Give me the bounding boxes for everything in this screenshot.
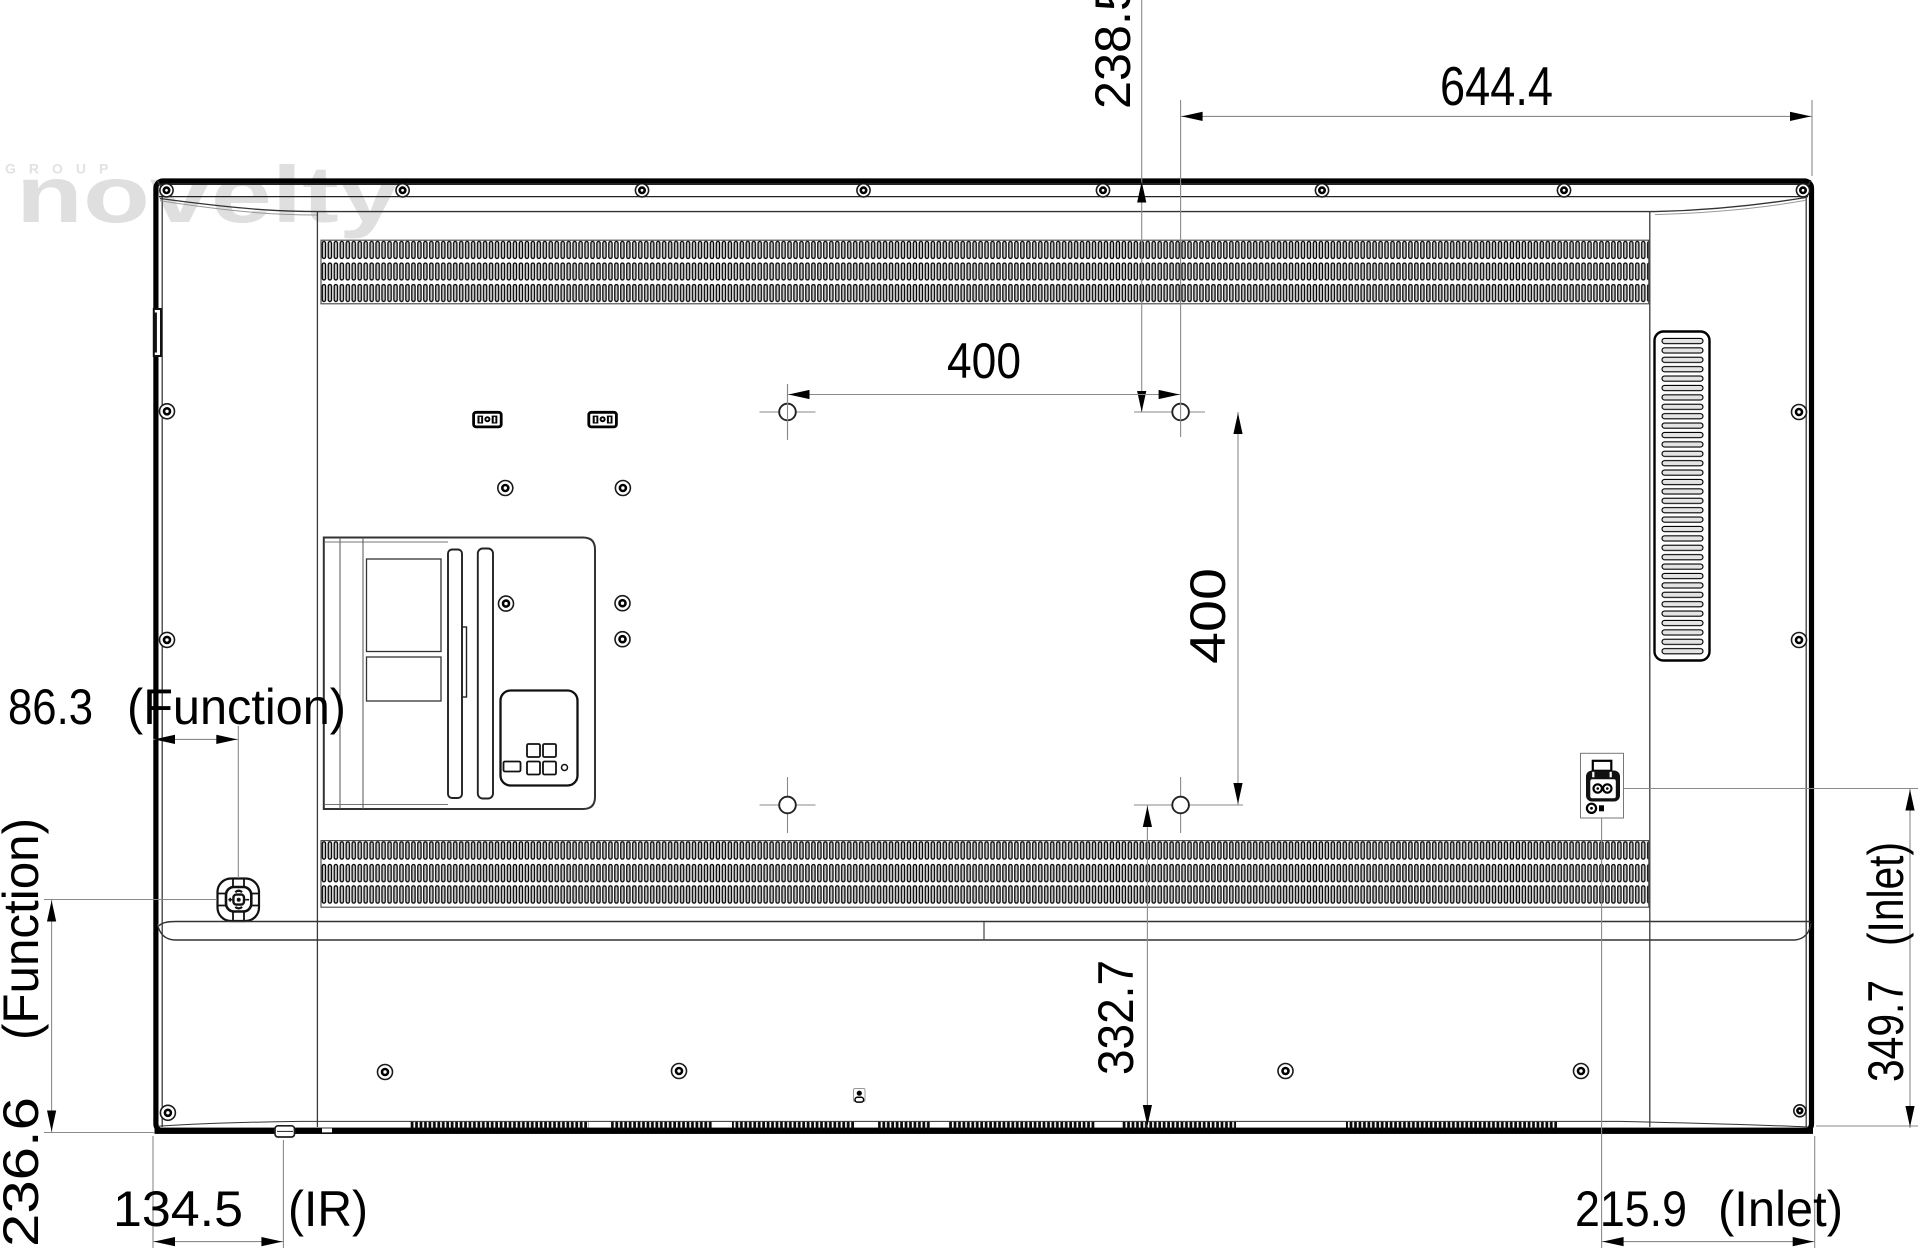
svg-text:(Function): (Function) bbox=[0, 818, 49, 1040]
svg-text:134.5: 134.5 bbox=[113, 1181, 243, 1237]
svg-text:236.6: 236.6 bbox=[0, 1097, 49, 1247]
svg-text:215.9: 215.9 bbox=[1575, 1181, 1687, 1237]
svg-text:(Inlet): (Inlet) bbox=[1858, 842, 1914, 946]
svg-text:(Inlet): (Inlet) bbox=[1718, 1181, 1843, 1237]
svg-text:400: 400 bbox=[1180, 568, 1236, 664]
svg-text:(Function): (Function) bbox=[127, 679, 346, 735]
svg-text:86.3: 86.3 bbox=[8, 679, 93, 735]
svg-text:349.7: 349.7 bbox=[1858, 980, 1914, 1082]
svg-text:400: 400 bbox=[947, 333, 1021, 389]
svg-text:238.5: 238.5 bbox=[1085, 0, 1141, 109]
svg-text:644.4: 644.4 bbox=[1440, 55, 1553, 117]
svg-text:novelty: novelty bbox=[16, 150, 400, 239]
svg-text:332.7: 332.7 bbox=[1088, 960, 1144, 1075]
svg-text:(IR): (IR) bbox=[288, 1181, 368, 1237]
